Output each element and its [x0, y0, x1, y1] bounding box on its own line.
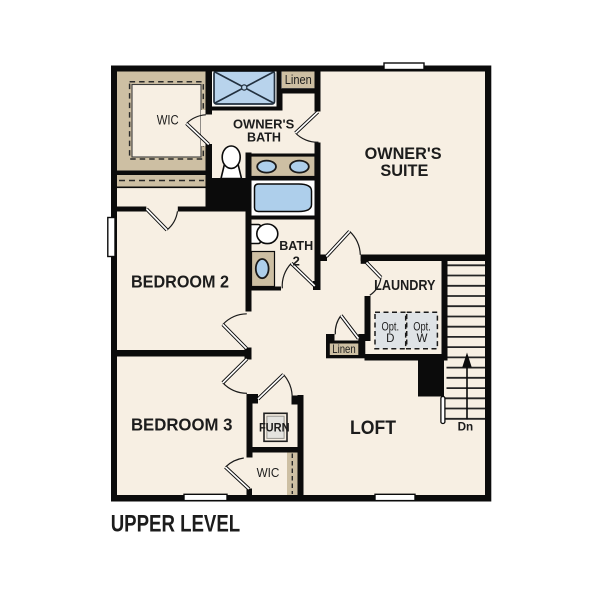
svg-text:FURN: FURN	[259, 423, 290, 435]
svg-text:Opt.: Opt.	[413, 322, 431, 334]
svg-text:LAUNDRY: LAUNDRY	[374, 278, 435, 294]
svg-text:LOFT: LOFT	[350, 417, 396, 439]
svg-text:W: W	[417, 333, 428, 345]
svg-text:Linen: Linen	[285, 73, 312, 87]
svg-text:BEDROOM 3: BEDROOM 3	[131, 415, 233, 435]
svg-text:BATH: BATH	[247, 129, 281, 144]
svg-text:BATH: BATH	[279, 238, 313, 253]
svg-text:2: 2	[293, 254, 300, 269]
svg-text:WIC: WIC	[257, 465, 280, 480]
svg-text:Dn: Dn	[458, 421, 474, 433]
svg-text:BEDROOM 2: BEDROOM 2	[131, 272, 229, 292]
svg-text:Linen: Linen	[332, 342, 356, 356]
svg-text:UPPER LEVEL: UPPER LEVEL	[111, 511, 241, 538]
svg-text:D: D	[386, 333, 394, 345]
svg-text:SUITE: SUITE	[380, 161, 428, 180]
svg-text:WIC: WIC	[157, 112, 179, 127]
svg-text:Opt.: Opt.	[382, 322, 400, 334]
